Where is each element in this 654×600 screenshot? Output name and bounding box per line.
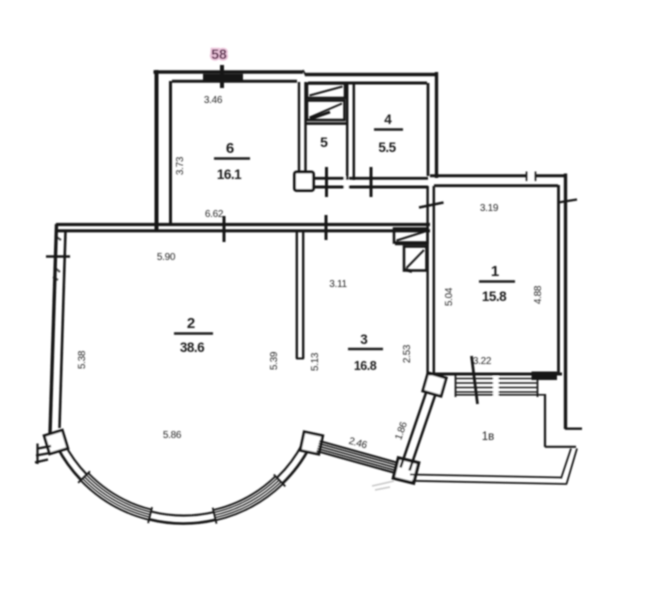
svg-text:3.46: 3.46 xyxy=(204,95,223,106)
svg-text:5.5: 5.5 xyxy=(378,140,396,155)
svg-text:1: 1 xyxy=(491,263,499,280)
svg-text:3.11: 3.11 xyxy=(329,279,347,290)
svg-text:4: 4 xyxy=(384,112,392,127)
svg-text:58: 58 xyxy=(211,46,227,62)
svg-text:6: 6 xyxy=(226,140,234,157)
svg-text:5.90: 5.90 xyxy=(157,252,176,263)
svg-text:5.04: 5.04 xyxy=(444,287,455,306)
svg-text:2: 2 xyxy=(187,315,195,332)
svg-text:4.88: 4.88 xyxy=(533,285,544,304)
svg-text:3.19: 3.19 xyxy=(480,203,499,214)
svg-text:3: 3 xyxy=(360,332,368,347)
svg-text:5.39: 5.39 xyxy=(269,351,280,370)
svg-text:5.38: 5.38 xyxy=(77,350,88,369)
svg-text:16.1: 16.1 xyxy=(217,167,242,182)
svg-text:5: 5 xyxy=(320,134,328,150)
svg-text:2.53: 2.53 xyxy=(402,344,413,363)
svg-text:1в: 1в xyxy=(482,431,495,443)
svg-text:16.8: 16.8 xyxy=(354,359,377,373)
svg-text:15.8: 15.8 xyxy=(482,289,507,304)
svg-text:5.86: 5.86 xyxy=(163,430,182,441)
svg-text:6.62: 6.62 xyxy=(205,209,224,220)
svg-text:3.22: 3.22 xyxy=(473,356,492,367)
svg-text:38.6: 38.6 xyxy=(180,340,205,355)
svg-text:5.13: 5.13 xyxy=(310,352,321,371)
svg-text:3.73: 3.73 xyxy=(175,156,186,175)
